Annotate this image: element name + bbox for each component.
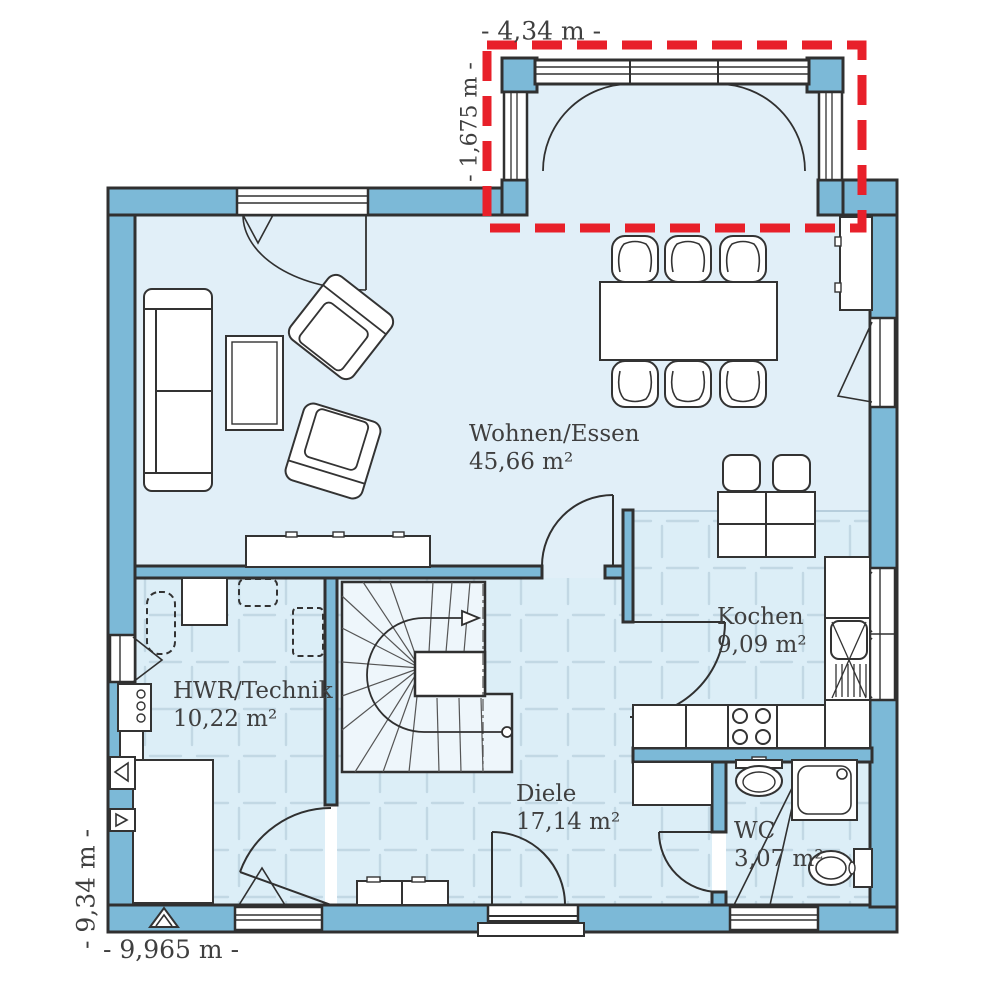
dining-table [600,282,777,360]
stair-void [415,652,485,696]
bay-pillar-right [807,58,843,92]
floor-plan: Wohnen/Essen 45,66 m² Kochen 9,09 m² HWR… [0,0,1000,1000]
sideboard-hall [357,877,448,905]
coffee-table [226,336,283,430]
sofa [144,289,212,491]
hwr-cabinet [182,578,227,625]
room-label-wc: WC 3,07 m² [734,818,824,873]
dining-chairs-top [612,236,766,282]
stove-icon [728,705,777,748]
wall-hall-wc-stub [712,892,726,905]
wall-hall-wc [712,762,726,832]
vent-box-2 [110,809,135,831]
kitchen-island [718,492,815,557]
dimension-bay-depth: - 1,675 m - [458,62,483,182]
bay-block-left [502,180,527,215]
room-name: Diele [516,781,620,809]
room-label-living: Wohnen/Essen 45,66 m² [469,421,640,476]
dimension-bay-width: - 4,34 m - [481,17,601,46]
room-label-hall: Diele 17,14 m² [516,781,620,836]
kitchen-counter-bottom [633,705,825,748]
room-area: 10,22 m² [173,706,333,734]
room-label-hwr: HWR/Technik 10,22 m² [173,678,333,733]
shower [792,760,857,820]
bay-pillar-left [502,58,537,92]
wardrobe [633,762,712,805]
room-area: 9,09 m² [717,632,807,660]
floor-plan-drawing [0,0,1000,1000]
washbasin [736,757,782,796]
bay-door-window [535,60,809,84]
room-area: 45,66 m² [469,449,640,477]
technical-unit [133,760,213,903]
vent-box-1 [110,757,135,789]
bay-block-right [818,180,843,215]
bar-stool-2 [773,455,810,491]
wall-kitchen-hall [623,510,633,622]
kitchen-sink [831,621,867,659]
room-label-kitchen: Kochen 9,09 m² [717,604,807,659]
room-name: WC [734,818,824,846]
room-name: Kochen [717,604,807,632]
room-name: HWR/Technik [173,678,333,706]
room-name: Wohnen/Essen [469,421,640,449]
dimension-house-depth: - 9,34 m - [72,829,101,949]
bay-floor [527,84,819,215]
room-area: 3,07 m² [734,846,824,874]
room-area: 17,14 m² [516,809,620,837]
dimension-house-width: - 9,965 m - [103,935,239,964]
bay-side-window-left [504,92,527,180]
sideboard-living [246,532,430,567]
dining-chairs-bottom [612,361,766,407]
bay-side-window-right [819,92,842,180]
bar-stool-1 [723,455,760,491]
kitchen-counter-right [825,557,870,748]
stair-start-marker [502,727,512,737]
